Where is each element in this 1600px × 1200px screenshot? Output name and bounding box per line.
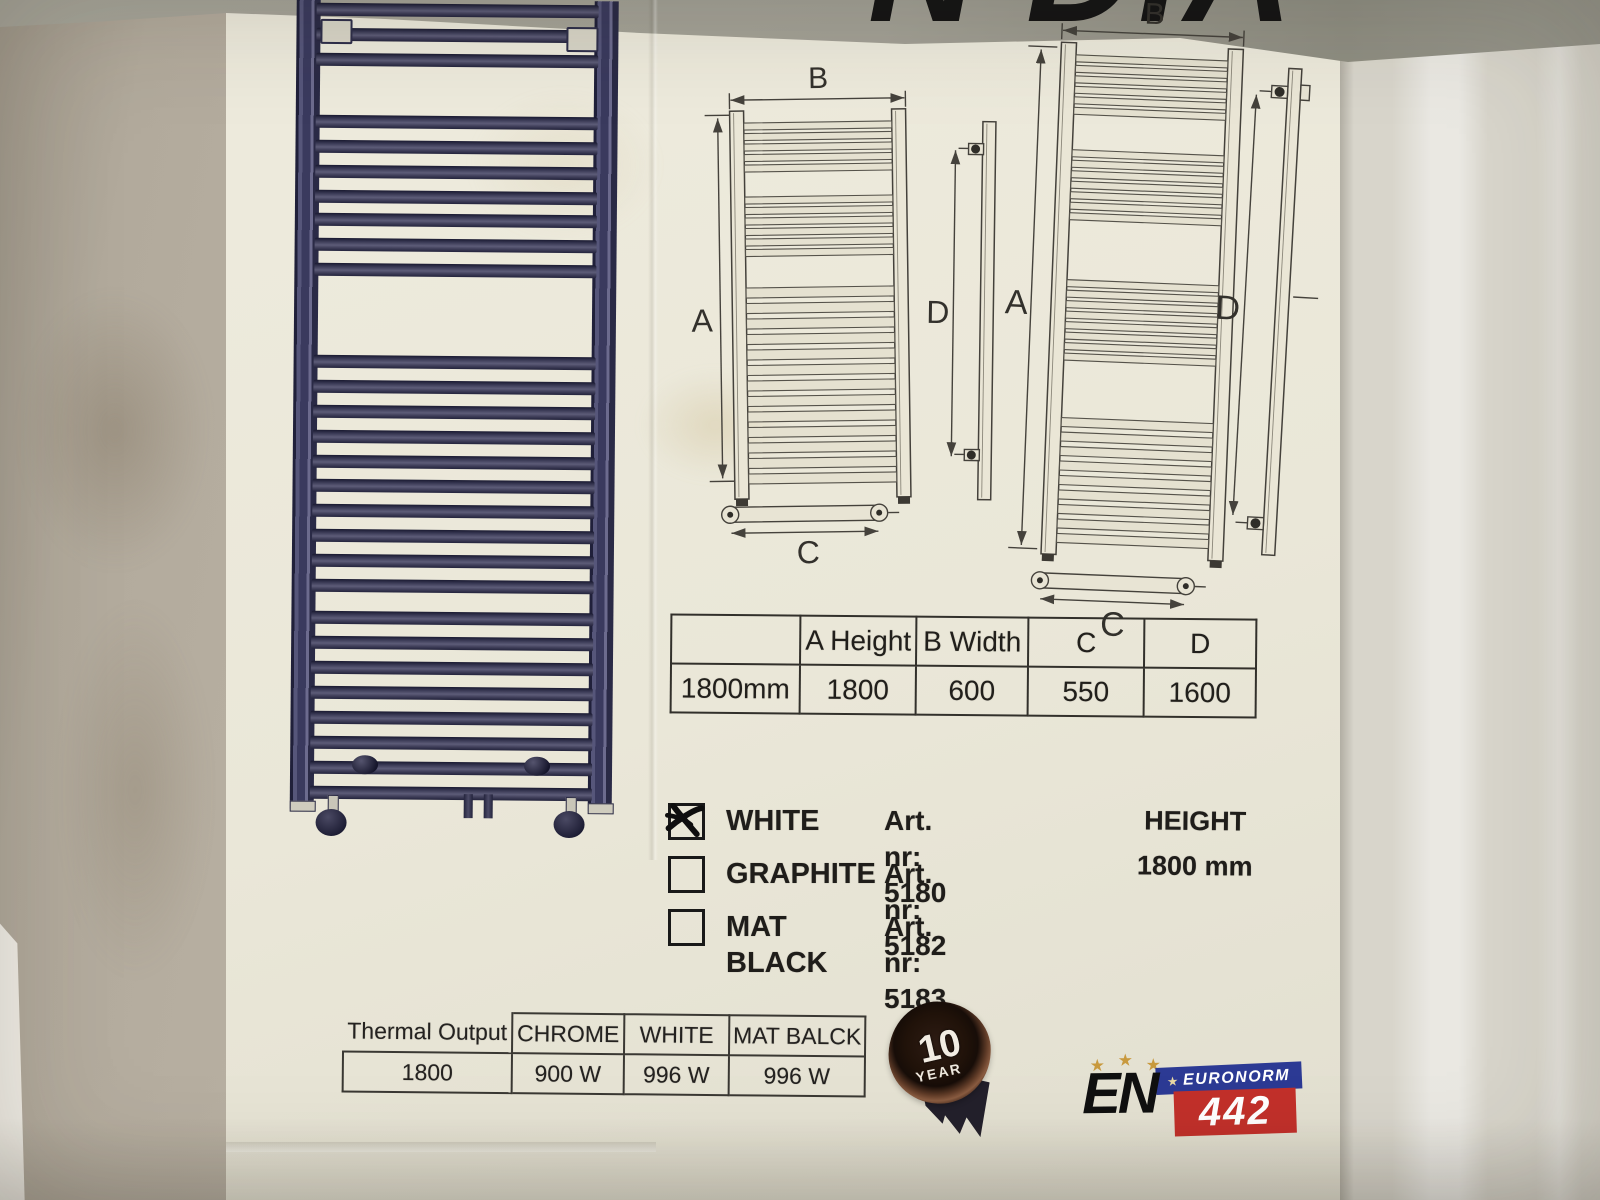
- diagram-large: A B C: [992, 0, 1246, 645]
- wall-stain: [20, 290, 210, 570]
- diagram-bar: [745, 226, 893, 235]
- dimensions-table: A HeightB WidthCD1800mm18006005501600: [670, 613, 1258, 718]
- radiator-bar: [312, 554, 594, 569]
- rail-end-cap: [588, 803, 614, 814]
- radiator-bar: [313, 405, 595, 420]
- dim-table-cell: 1600: [1144, 668, 1256, 718]
- diagram-bar: [748, 394, 896, 406]
- radiator-bar: [315, 238, 597, 253]
- star-icon: ★: [1167, 1076, 1179, 1089]
- diagram-bar: [744, 163, 892, 172]
- radiator-bar: [316, 53, 598, 68]
- dim-table-header: A Height: [800, 616, 916, 666]
- dim-label-c: C: [796, 534, 820, 570]
- radiator-bar: [312, 479, 594, 494]
- thermal-table-header: Thermal Output: [343, 1011, 512, 1053]
- diagram-bar: [1061, 432, 1213, 447]
- dim-label-d: D: [926, 294, 950, 330]
- pipe-connection: [464, 794, 473, 818]
- diagram-small: A B C D: [688, 60, 1002, 572]
- wall-bracket: [566, 27, 598, 52]
- radiator-bar: [312, 529, 594, 544]
- dim-table-cell: 1800mm: [671, 663, 800, 713]
- radiator-bar: [311, 636, 593, 651]
- diagram-bar: [748, 425, 896, 437]
- radiator-bar: [310, 736, 592, 751]
- dim-table-cell: 1800: [800, 665, 916, 715]
- rail-end-cap: [290, 801, 316, 812]
- radiator-bar: [315, 165, 597, 180]
- diagram-bar: [1061, 418, 1213, 433]
- height-label: HEIGHT: [1128, 805, 1262, 837]
- diagram-small-side: D: [924, 121, 996, 500]
- thermal-table-cell: 900 W: [512, 1053, 624, 1094]
- diagram-bar: [1057, 519, 1209, 534]
- dim-label-b: B: [1144, 0, 1165, 31]
- radiator-bar: [313, 455, 595, 470]
- pipe-connection: [484, 794, 493, 818]
- diagram-bar: [746, 286, 894, 298]
- thermal-table-header: MAT BALCK: [729, 1015, 865, 1056]
- box-side-panel: [1340, 0, 1600, 1200]
- radiator-illustration: [289, 0, 619, 863]
- radiator-bar: [313, 430, 595, 445]
- bottom-shadow: [0, 1118, 1600, 1200]
- radiator-bar: [315, 213, 597, 228]
- radiator-bar: [311, 661, 593, 676]
- dim-table-cell: 550: [1028, 667, 1144, 717]
- dim-table-header: D: [1144, 619, 1256, 669]
- diagram-bar: [748, 410, 896, 422]
- option-label: MAT BLACK: [726, 909, 827, 981]
- dim-table-cell: 600: [916, 666, 1028, 716]
- wall-stain: [60, 600, 210, 980]
- radiator-bar: [312, 504, 594, 519]
- dim-label-d: D: [1214, 289, 1241, 328]
- thermal-table-header: CHROME: [512, 1013, 624, 1054]
- diagram-bar: [1058, 490, 1210, 505]
- height-value: 1800 mm: [1128, 850, 1262, 882]
- radiator-bar: [313, 380, 595, 395]
- diagram-bar: [745, 247, 893, 256]
- radiator-bar: [314, 263, 596, 278]
- radiator-bar: [316, 28, 598, 43]
- dim-table-header: [671, 614, 800, 664]
- valve-knob: [524, 757, 550, 776]
- valve-knob: [352, 755, 378, 774]
- thermal-table-cell: 996 W: [729, 1055, 865, 1096]
- radiator-bar: [315, 140, 597, 155]
- euronorm-text: EURONORM: [1183, 1067, 1291, 1089]
- diagram-bar: [744, 152, 892, 161]
- diagram-bar: [746, 301, 894, 313]
- diagram-bar: [748, 441, 896, 453]
- diagram-bar: [1059, 475, 1211, 490]
- radiator-bar: [314, 355, 596, 370]
- diagram-bar: [745, 237, 893, 246]
- diagram-bar: [1056, 533, 1208, 548]
- diagram-bar: [746, 317, 894, 329]
- radiator-bar: [310, 786, 592, 801]
- diagram-bar: [744, 131, 892, 140]
- en-text: EN: [1082, 1064, 1157, 1123]
- radiator-bar: [310, 711, 592, 726]
- dim-label-a: A: [1004, 283, 1029, 322]
- radiator-bars: [297, 0, 619, 1]
- wall-background: [0, 0, 226, 1200]
- diagram-bar: [745, 205, 893, 214]
- check-mark-icon: [664, 800, 706, 840]
- dim-table-header: B Width: [916, 617, 1028, 667]
- dim-table-header: C: [1028, 618, 1144, 668]
- thermal-table-header: WHITE: [624, 1014, 729, 1055]
- graphite-checkbox: [668, 856, 705, 893]
- thermal-table-cell: 1800: [343, 1051, 512, 1093]
- dim-label-a: A: [691, 302, 714, 338]
- radiator-bar: [311, 611, 593, 626]
- diagram-bar: [1060, 446, 1212, 461]
- radiator-bar: [311, 686, 593, 701]
- diagram-bar: [747, 348, 895, 360]
- thermal-output-table: Thermal OutputCHROMEWHITEMAT BALCK180090…: [342, 1010, 867, 1097]
- diagram-bar: [744, 142, 892, 151]
- radiator-bar: [312, 579, 594, 594]
- mat-black-checkbox: [668, 909, 705, 946]
- diagram-bar: [1059, 461, 1211, 476]
- dim-label-b: B: [808, 62, 828, 95]
- diagram-bar: [1058, 504, 1210, 519]
- height-block: HEIGHT 1800 mm: [1128, 805, 1263, 882]
- radiator-bar: [315, 190, 597, 205]
- diagram-bar: [745, 195, 893, 204]
- radiator-bar: [316, 115, 598, 130]
- option-label: WHITE: [726, 803, 819, 839]
- dimension-diagrams: A B C D: [650, 0, 1340, 645]
- diagram-bar: [745, 216, 893, 225]
- radiator-foot: [553, 811, 584, 838]
- box-photo: N DIA A: [0, 0, 1600, 1200]
- diagram-bar: [747, 332, 895, 344]
- diagram-bar: [747, 379, 895, 391]
- radiator-bar: [317, 3, 599, 18]
- white-checkbox: [668, 803, 705, 840]
- option-label: GRAPHITE: [726, 856, 876, 892]
- diagram-bar: [747, 363, 895, 375]
- diagram-bar: [748, 456, 896, 468]
- wall-bracket: [320, 19, 352, 44]
- thermal-table-cell: 996 W: [624, 1054, 729, 1095]
- diagram-bar: [749, 472, 897, 484]
- diagram-bar: [744, 121, 892, 130]
- radiator-foot: [315, 809, 346, 836]
